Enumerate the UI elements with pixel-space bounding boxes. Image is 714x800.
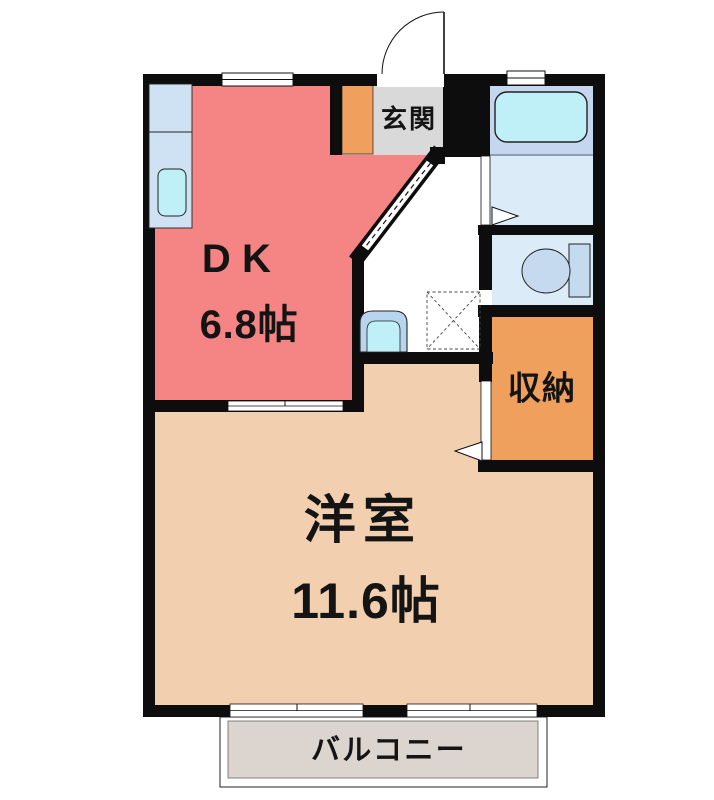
floorplan-drawing <box>0 0 714 800</box>
wall-storage-left <box>479 305 492 382</box>
wall-entrance-right-block <box>443 74 490 157</box>
floorplan: 玄関 DK 6.8帖 洋室 11.6帖 収納 バルコニー <box>0 0 714 800</box>
wall-hall-bottom <box>352 352 493 364</box>
washing-machine-space <box>427 292 480 349</box>
wall-entrance-dk <box>330 74 342 155</box>
kitchen-sink <box>158 169 186 216</box>
entrance-door-swing <box>382 12 444 74</box>
balcony-label: バルコニー <box>311 737 467 766</box>
wall-diagonal-corner <box>430 147 445 164</box>
toilet-door-opening <box>479 290 492 305</box>
bath-window <box>507 71 545 85</box>
dk-label: DK <box>202 239 282 279</box>
wall-toilet-bottom <box>478 305 605 317</box>
balcony-window-left <box>230 704 363 717</box>
bath-door-opening <box>481 156 490 225</box>
storage-label: 収納 <box>508 372 577 405</box>
dk-size-label: 6.8帖 <box>200 305 299 345</box>
dk-western-sliding-door <box>228 401 343 411</box>
western-room-label: 洋室 <box>304 495 423 547</box>
washbasin <box>360 311 407 352</box>
toilet-tank <box>569 244 590 297</box>
entrance-label: 玄関 <box>381 106 437 132</box>
wall-bath-toilet <box>478 225 605 235</box>
wall-toilet-left <box>479 235 492 290</box>
balcony-window-right <box>407 704 537 717</box>
western-room-size-label: 11.6帖 <box>291 576 441 626</box>
kitchen-counter <box>149 84 192 228</box>
wall-right <box>593 74 605 717</box>
entrance-door-opening <box>377 73 444 87</box>
dk-window <box>222 73 293 86</box>
wall-storage-bottom <box>478 460 605 472</box>
toilet-bowl <box>522 249 570 293</box>
shoe-cabinet <box>342 84 373 154</box>
bathtub <box>495 92 587 142</box>
